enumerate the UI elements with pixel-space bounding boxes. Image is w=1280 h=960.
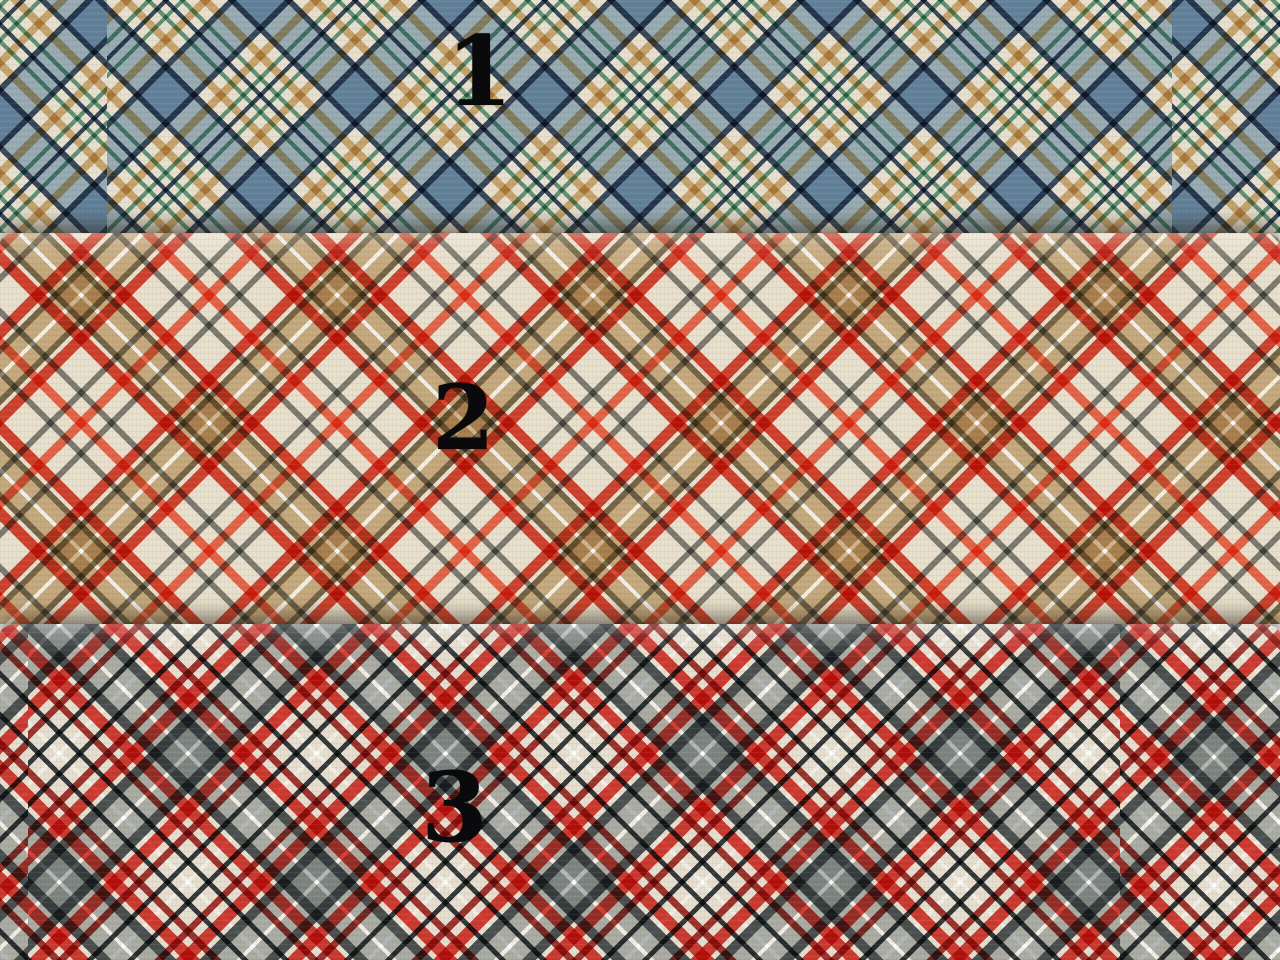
fabric-weave-texture — [0, 0, 1280, 233]
fabric-swatch-2-red-khaki-tartan: 2 — [0, 233, 1280, 624]
fabric-fold-highlight — [0, 233, 1280, 267]
fabric-swatch-1-blue-tartan: 1 — [0, 0, 1280, 233]
fabric-weave-texture — [0, 624, 1280, 960]
swatch-number-label-2: 2 — [432, 373, 495, 463]
swatch-number-label-3: 3 — [421, 760, 488, 856]
fabric-swatch-photo: 1 2 3 — [0, 0, 1280, 960]
fabric-weave-texture — [0, 233, 1280, 624]
swatch-number-label-1: 1 — [446, 24, 513, 120]
fabric-swatch-3-grey-red-tartan: 3 — [0, 624, 1280, 960]
fabric-fold-highlight — [0, 624, 1280, 658]
